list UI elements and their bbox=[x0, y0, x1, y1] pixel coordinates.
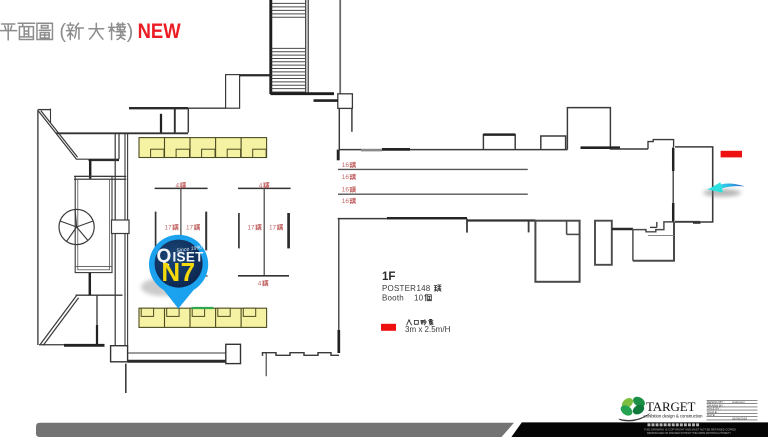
svg-text:4: 4 bbox=[259, 182, 263, 189]
svg-text:10: 10 bbox=[414, 294, 424, 303]
svg-text:17: 17 bbox=[186, 224, 194, 231]
svg-text:exhibition design & constructi: exhibition design & construction bbox=[644, 414, 704, 419]
svg-text:17: 17 bbox=[269, 224, 277, 231]
svg-text:148: 148 bbox=[417, 284, 431, 293]
svg-text:NEW: NEW bbox=[138, 20, 181, 43]
svg-text:DATE :: DATE : bbox=[707, 413, 717, 417]
svg-text:TARGET: TARGET bbox=[646, 399, 696, 414]
svg-text:POSTER: POSTER bbox=[382, 284, 416, 293]
svg-text:4: 4 bbox=[176, 182, 180, 189]
svg-text:): ) bbox=[127, 21, 134, 43]
svg-text:(: ( bbox=[59, 21, 66, 43]
svg-text:Booth: Booth bbox=[382, 294, 404, 303]
svg-text:REPRODUCED OR MISUSED WITHOUT: REPRODUCED OR MISUSED WITHOUT THE FIRMS … bbox=[647, 431, 731, 435]
svg-text:17: 17 bbox=[248, 224, 256, 231]
svg-text:26/06/2018: 26/06/2018 bbox=[732, 417, 747, 421]
svg-text:4: 4 bbox=[258, 280, 262, 287]
svg-text:1F: 1F bbox=[382, 271, 395, 283]
svg-text:16: 16 bbox=[342, 162, 350, 169]
svg-text:Anderson: Anderson bbox=[732, 400, 745, 404]
svg-text:16: 16 bbox=[342, 198, 350, 205]
svg-text:3m x 2.5m/H: 3m x 2.5m/H bbox=[405, 325, 451, 334]
svg-text:N7: N7 bbox=[161, 257, 195, 287]
svg-text:16: 16 bbox=[342, 187, 350, 194]
svg-text:17: 17 bbox=[165, 224, 173, 231]
svg-text:16: 16 bbox=[342, 174, 350, 181]
